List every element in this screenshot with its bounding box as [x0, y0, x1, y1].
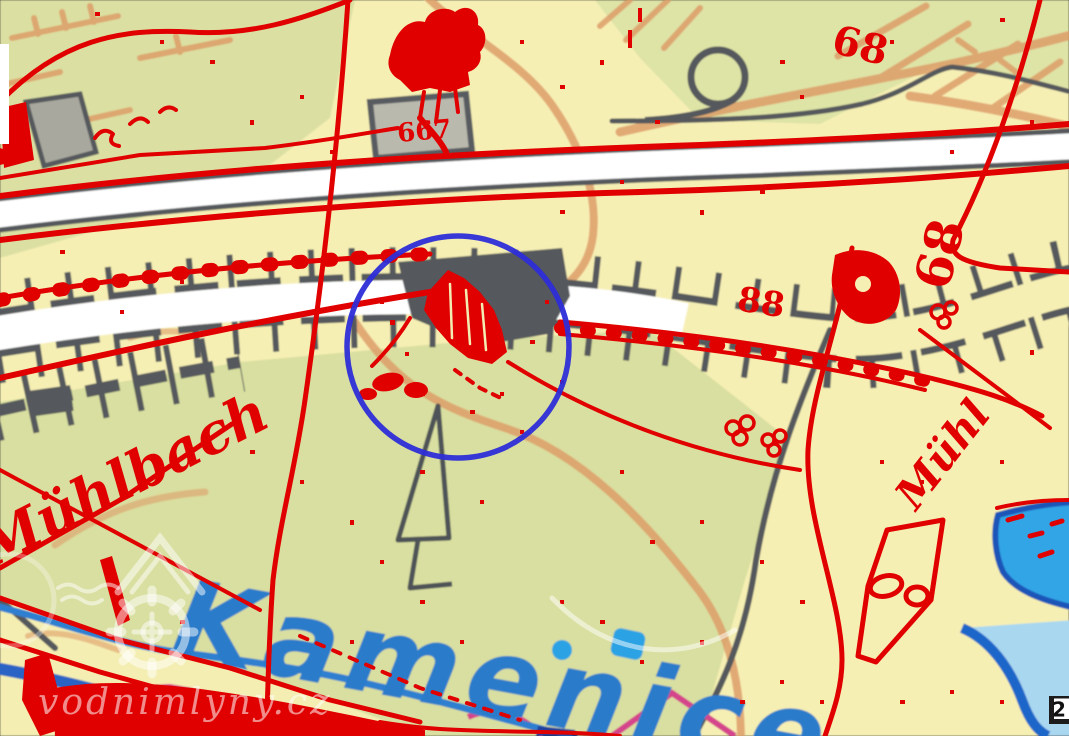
- watermark-text: vodnimlyny.cz: [38, 682, 332, 723]
- map-svg: Kamenice: [0, 0, 1069, 736]
- corner-label: 2: [1052, 698, 1066, 722]
- watermark-gear-icon: [110, 590, 194, 674]
- corner-label-box: 2: [1049, 696, 1069, 724]
- parcel-pair-number: 88: [735, 279, 788, 326]
- map-canvas[interactable]: Kamenice: [0, 0, 1069, 736]
- building-parcel-number: 667: [396, 114, 453, 149]
